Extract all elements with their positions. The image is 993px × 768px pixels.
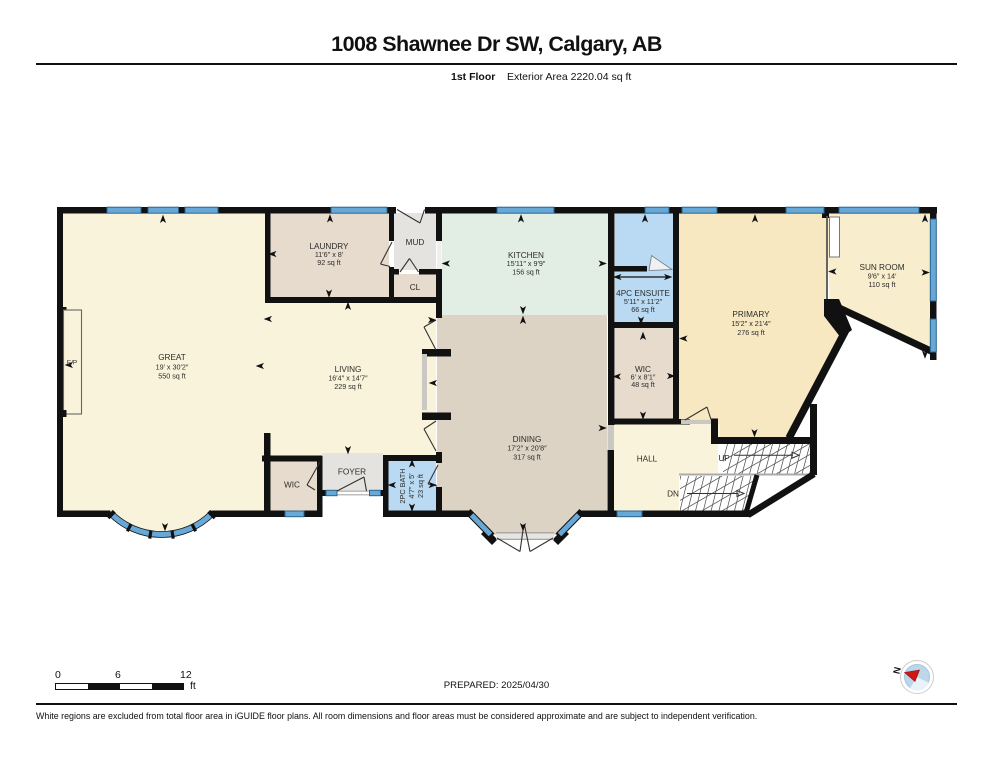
svg-text:110 sq ft: 110 sq ft bbox=[868, 280, 895, 289]
svg-text:550 sq ft: 550 sq ft bbox=[158, 372, 186, 381]
svg-text:PRIMARY: PRIMARY bbox=[732, 310, 770, 319]
svg-text:17′2″ x 20′8″: 17′2″ x 20′8″ bbox=[507, 444, 547, 453]
svg-text:MUD: MUD bbox=[406, 238, 425, 247]
svg-text:DN: DN bbox=[667, 490, 679, 499]
svg-text:UP: UP bbox=[718, 454, 730, 463]
svg-text:48 sq ft: 48 sq ft bbox=[631, 380, 655, 389]
svg-text:N: N bbox=[890, 666, 902, 675]
svg-text:2PC BATH: 2PC BATH bbox=[398, 468, 407, 503]
svg-text:23 sq ft: 23 sq ft bbox=[416, 474, 425, 498]
svg-text:92 sq ft: 92 sq ft bbox=[317, 258, 341, 267]
svg-text:4′7″ x 5′: 4′7″ x 5′ bbox=[407, 473, 416, 499]
svg-text:156 sq ft: 156 sq ft bbox=[512, 267, 540, 276]
svg-text:276 sq ft: 276 sq ft bbox=[737, 328, 765, 337]
svg-text:FOYER: FOYER bbox=[338, 468, 366, 477]
svg-text:15′2″ x 21′4″: 15′2″ x 21′4″ bbox=[731, 319, 771, 328]
svg-text:CL: CL bbox=[410, 283, 421, 292]
svg-text:GREAT: GREAT bbox=[158, 353, 186, 362]
svg-text:WIC: WIC bbox=[284, 481, 300, 490]
svg-text:DINING: DINING bbox=[513, 435, 542, 444]
svg-text:66 sq ft: 66 sq ft bbox=[631, 305, 655, 314]
svg-text:317 sq ft: 317 sq ft bbox=[513, 452, 541, 461]
svg-text:19′ x 30′2″: 19′ x 30′2″ bbox=[156, 362, 189, 371]
svg-text:229 sq ft: 229 sq ft bbox=[334, 382, 362, 391]
svg-text:HALL: HALL bbox=[637, 455, 658, 464]
svg-text:E/P: E/P bbox=[67, 360, 77, 367]
